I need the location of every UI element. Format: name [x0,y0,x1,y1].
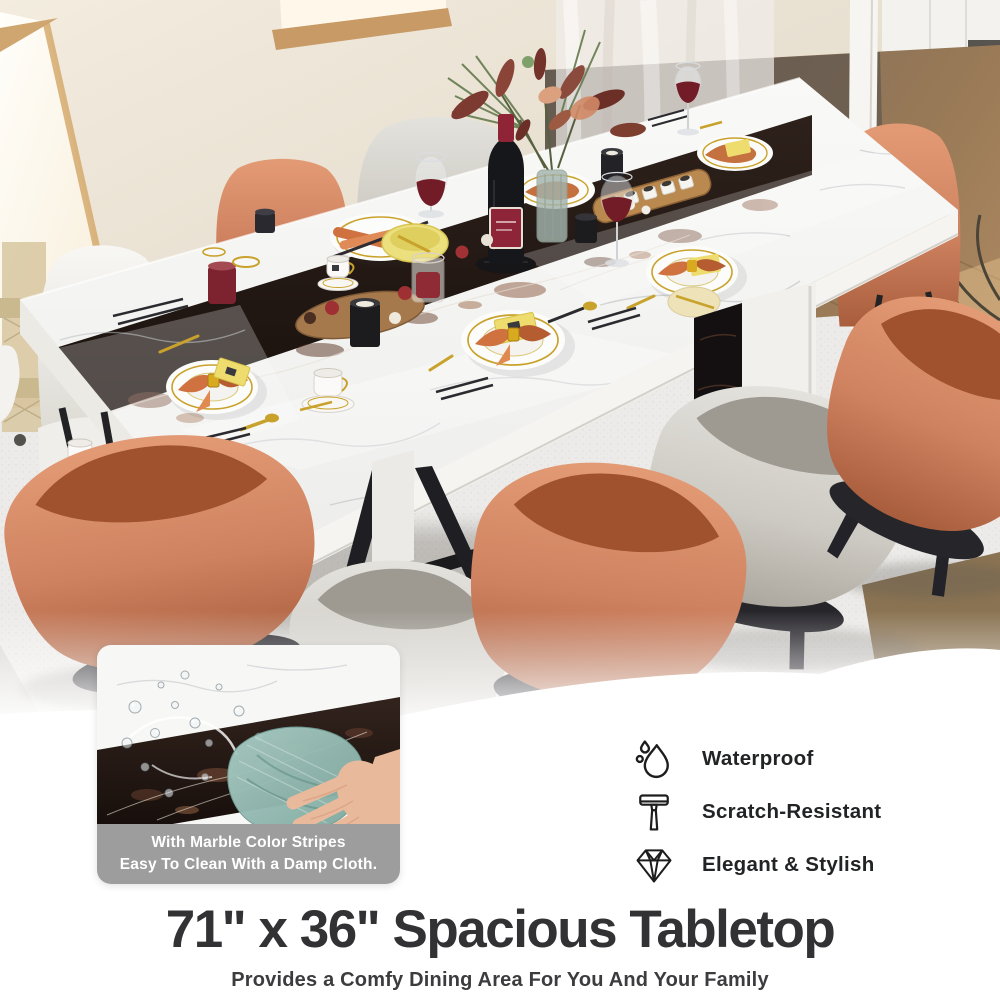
inset-caption-line2: Easy To Clean With a Damp Cloth. [120,855,377,875]
stemless-glass [412,253,444,302]
diamond-icon [632,843,676,887]
headline-subtitle: Provides a Comfy Dining Area For You And… [0,969,1000,992]
inset-caption-line1: With Marble Color Stripes [151,833,345,853]
feature-elegant-stylish: Elegant & Stylish [632,842,881,888]
feature-label: Waterproof [702,747,814,771]
feature-list: Waterproof Scratch-Resistant [632,736,881,888]
bottle-label [490,208,522,248]
feature-label: Scratch-Resistant [702,800,881,824]
inset-caption: With Marble Color Stripes Easy To Clean … [97,824,400,884]
glass-vase [537,170,567,242]
headline-title: 71" x 36" Spacious Tabletop [0,903,1000,956]
product-photo [0,0,1000,740]
feature-scratch-resistant: Scratch-Resistant [632,789,881,835]
product-infographic: With Marble Color Stripes Easy To Clean … [0,0,1000,1000]
razor-icon [632,790,676,834]
water-drop-icon [632,737,676,781]
feature-waterproof: Waterproof [632,736,881,782]
feature-label: Elegant & Stylish [702,853,875,877]
headline-block: 71" x 36" Spacious Tabletop Provides a C… [0,903,1000,992]
cleaning-inset: With Marble Color Stripes Easy To Clean … [97,645,400,884]
